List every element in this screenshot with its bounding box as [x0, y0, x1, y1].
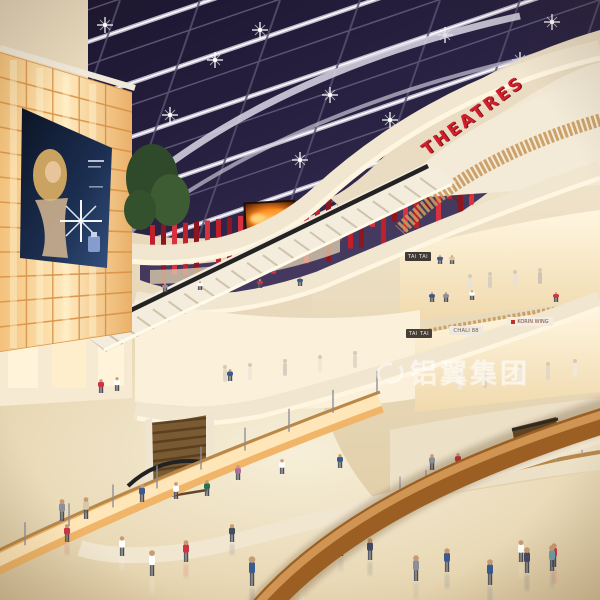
- watermark-text: 铝翼集团: [410, 352, 530, 391]
- store-sign-korin-wing: KORIN WING: [507, 317, 553, 326]
- swirl-logo-icon: [376, 358, 406, 386]
- korin-wing-logo-icon: [511, 320, 515, 324]
- store-sign-chali-88: CHALI 88: [449, 326, 483, 335]
- korin-wing-label: KORIN WING: [517, 319, 548, 325]
- mall-atrium-rendering: THEATRES TAI TAI TAI TAI CHALI 88 KORIN …: [0, 0, 600, 600]
- store-sign-tai-tai-upper: TAI TAI: [405, 252, 431, 261]
- watermark: 铝翼集团: [376, 352, 530, 391]
- store-sign-tai-tai-lower: TAI TAI: [406, 329, 432, 338]
